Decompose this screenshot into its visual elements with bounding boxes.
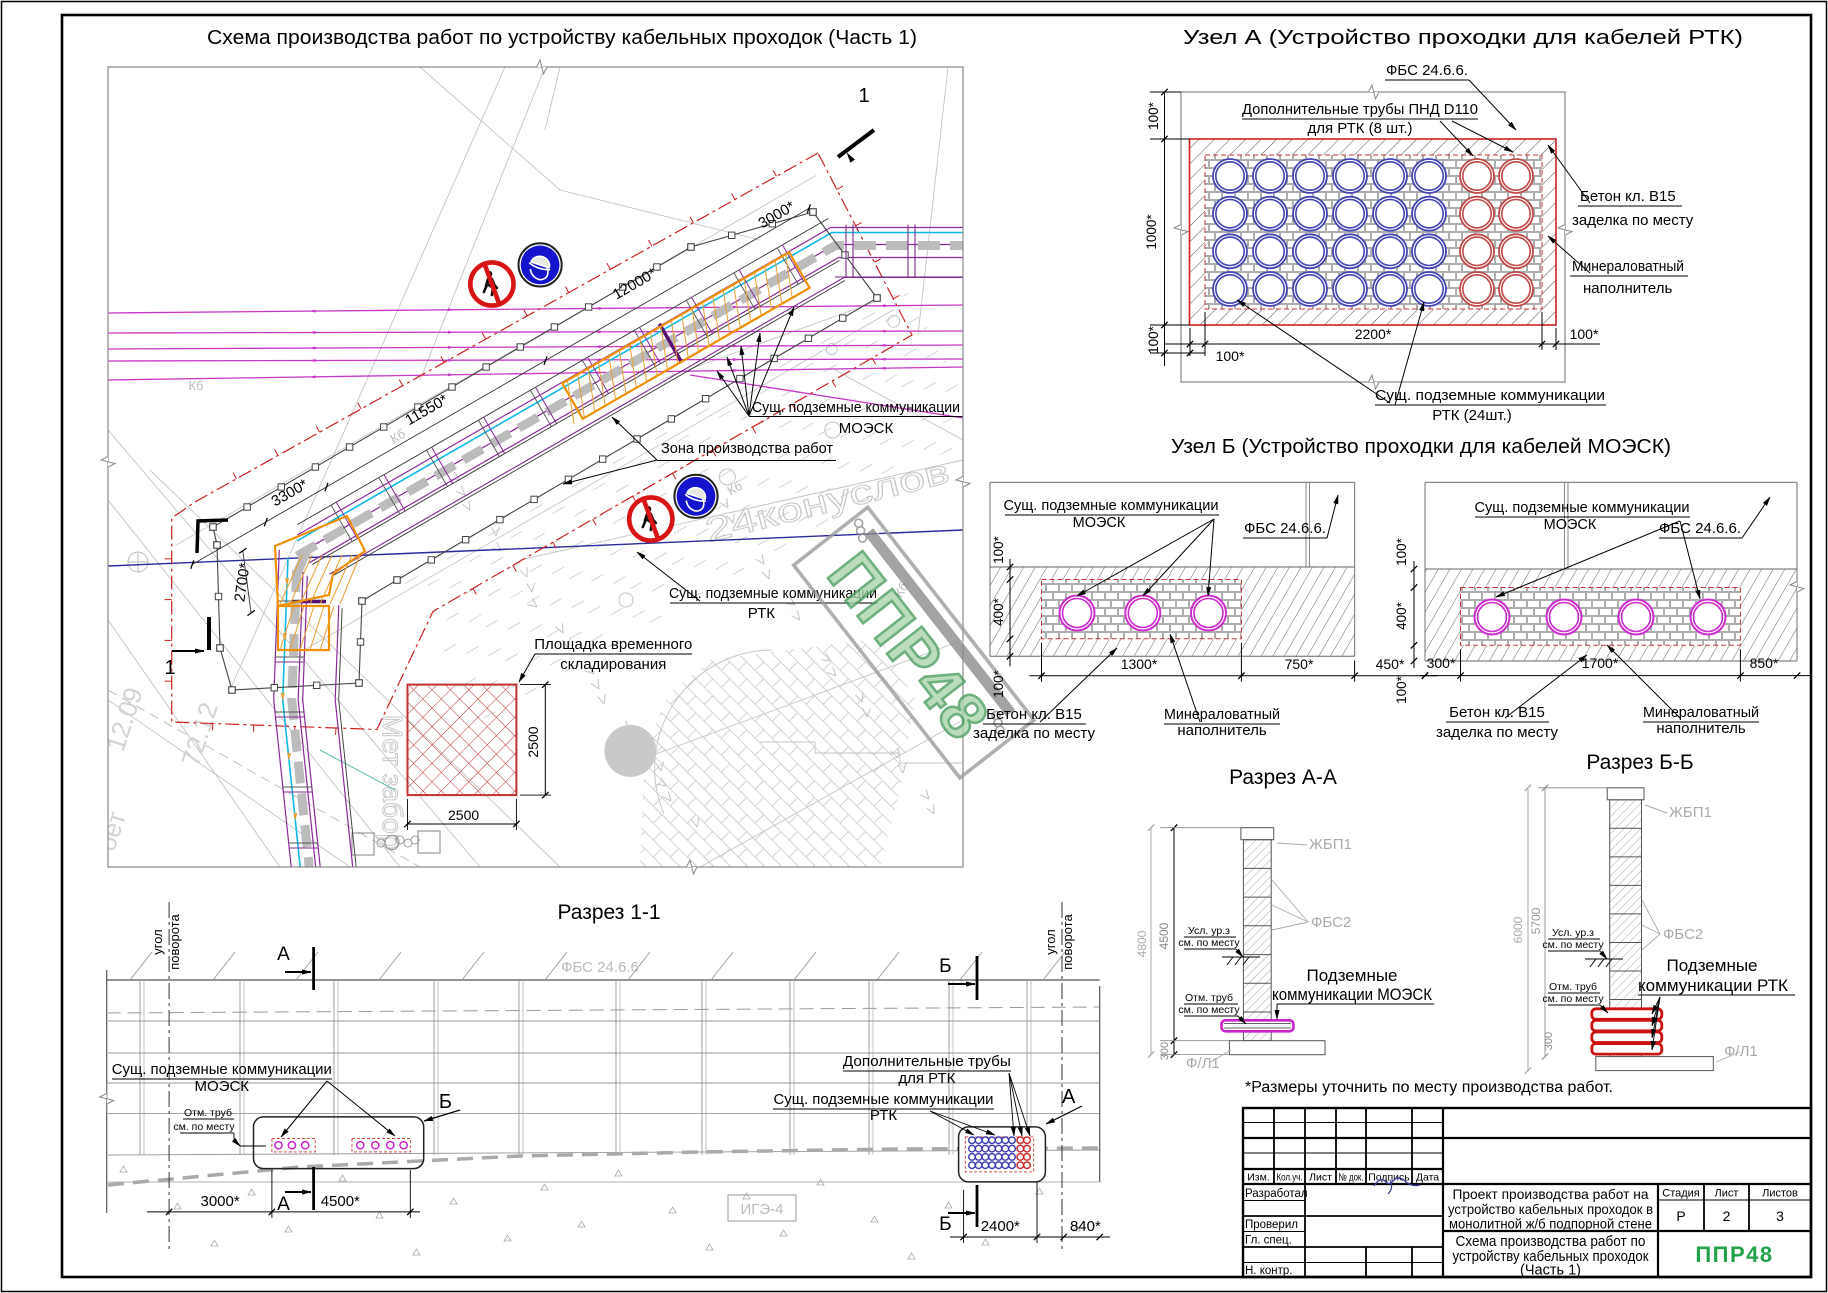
svg-text:Минераловатный: Минераловатный bbox=[1164, 706, 1280, 723]
svg-text:100*: 100* bbox=[1394, 537, 1409, 566]
svg-text:Дополнительные трубы: Дополнительные трубы bbox=[843, 1053, 1011, 1070]
svg-text:Листов: Листов bbox=[1762, 1188, 1798, 1200]
svg-text:Н. контр.: Н. контр. bbox=[1245, 1265, 1292, 1277]
svg-text:Стадия: Стадия bbox=[1662, 1188, 1700, 1200]
svg-text:5700: 5700 bbox=[1529, 907, 1543, 934]
svg-text:*Размеры уточнить по месту про: *Размеры уточнить по месту производства … bbox=[1245, 1079, 1613, 1096]
svg-text:Отм. труб: Отм. труб bbox=[1549, 981, 1597, 993]
svg-text:угол: угол bbox=[1043, 929, 1058, 955]
svg-text:МОЭСК: МОЭСК bbox=[1073, 515, 1126, 531]
svg-text:100*: 100* bbox=[1146, 325, 1161, 354]
svg-text:450*: 450* bbox=[1376, 656, 1405, 672]
svg-text:Разрез А-А: Разрез А-А bbox=[1229, 766, 1337, 789]
svg-text:Схема производства работ по: Схема производства работ по bbox=[1456, 1234, 1646, 1250]
svg-text:Сущ. подземные коммуникации: Сущ. подземные коммуникации bbox=[1375, 387, 1605, 404]
svg-text:Минераловатный: Минераловатный bbox=[1643, 704, 1759, 721]
svg-text:Усл. ур.з: Усл. ур.з bbox=[1552, 927, 1594, 939]
svg-text:Б: Б bbox=[939, 956, 951, 977]
svg-text:850*: 850* bbox=[1750, 655, 1779, 671]
svg-text:Б: Б bbox=[939, 1214, 951, 1235]
svg-text:Мет забор: Мет забор bbox=[377, 715, 408, 849]
svg-text:Проект производства работ на: Проект производства работ на bbox=[1453, 1186, 1649, 1202]
svg-text:Сущ. подземные коммуникации: Сущ. подземные коммуникации bbox=[112, 1061, 332, 1078]
svg-text:Подземные: Подземные bbox=[1306, 966, 1397, 985]
svg-text:Бетон кл. B15: Бетон кл. B15 bbox=[1449, 704, 1545, 721]
svg-text:Изм.: Изм. bbox=[1247, 1172, 1270, 1184]
svg-text:Подпись: Подпись bbox=[1368, 1172, 1410, 1184]
svg-text:Б: Б bbox=[439, 1091, 452, 1113]
svg-text:2400*: 2400* bbox=[981, 1218, 1020, 1235]
svg-text:2: 2 bbox=[1723, 1208, 1731, 1224]
svg-text:см. по месту: см. по месту bbox=[1542, 939, 1604, 951]
svg-text:1300*: 1300* bbox=[1121, 656, 1158, 672]
svg-text:РТК (24шт.): РТК (24шт.) bbox=[1432, 407, 1511, 424]
svg-text:Сущ. подземные коммуникации: Сущ. подземные коммуникации bbox=[1004, 498, 1219, 514]
svg-text:Узел Б (Устройство проходки дл: Узел Б (Устройство проходки для кабелей … bbox=[1171, 436, 1671, 458]
svg-text:Р: Р bbox=[1676, 1208, 1685, 1224]
svg-text:Разрез Б-Б: Разрез Б-Б bbox=[1586, 751, 1693, 774]
svg-text:наполнитель: наполнитель bbox=[1656, 720, 1745, 737]
svg-text:складирования: складирования bbox=[560, 656, 666, 673]
svg-text:Сущ. подземные коммуникации: Сущ. подземные коммуникации bbox=[774, 1091, 994, 1108]
svg-text:для РТК (8 шт.): для РТК (8 шт.) bbox=[1307, 120, 1412, 137]
svg-text:РТК: РТК bbox=[870, 1107, 897, 1124]
svg-text:МОЭСК: МОЭСК bbox=[195, 1078, 250, 1095]
svg-text:1700*: 1700* bbox=[1582, 655, 1619, 671]
svg-text:3: 3 bbox=[1776, 1208, 1784, 1224]
svg-text:1: 1 bbox=[858, 85, 869, 107]
svg-text:монолитной ж/б подпорной стене: монолитной ж/б подпорной стене bbox=[1449, 1216, 1652, 1232]
svg-text:РТК: РТК bbox=[748, 605, 775, 622]
svg-text:ФБС 24.6.6.: ФБС 24.6.6. bbox=[1659, 520, 1741, 537]
svg-text:Ф/Л1: Ф/Л1 bbox=[1186, 1055, 1220, 1072]
svg-text:Подземные: Подземные bbox=[1666, 956, 1757, 975]
svg-text:4800: 4800 bbox=[1135, 930, 1149, 957]
svg-text:см. по месту: см. по месту bbox=[1178, 937, 1240, 949]
svg-text:Проверил: Проверил bbox=[1245, 1219, 1298, 1231]
svg-text:840*: 840* bbox=[1070, 1218, 1101, 1235]
svg-text:№ док.: № док. bbox=[1339, 1172, 1364, 1184]
svg-text:Сущ. подземные коммуникации: Сущ. подземные коммуникации bbox=[752, 399, 960, 416]
svg-text:А: А bbox=[1062, 1086, 1076, 1108]
svg-text:1: 1 bbox=[164, 657, 175, 679]
svg-text:ИГЭ-4: ИГЭ-4 bbox=[740, 1201, 783, 1218]
svg-text:А: А bbox=[277, 944, 290, 965]
svg-text:300: 300 bbox=[1543, 1032, 1555, 1050]
svg-text:Бетон кл. B15: Бетон кл. B15 bbox=[986, 706, 1082, 723]
svg-text:Усл. ур.з: Усл. ур.з bbox=[1188, 925, 1230, 937]
svg-text:400*: 400* bbox=[1394, 601, 1409, 630]
svg-text:100*: 100* bbox=[1570, 326, 1599, 342]
svg-text:ФБС2: ФБС2 bbox=[1663, 926, 1703, 943]
svg-text:заделка по месту: заделка по месту bbox=[1572, 212, 1694, 229]
svg-text:3000*: 3000* bbox=[200, 1193, 239, 1210]
svg-text:1000*: 1000* bbox=[1144, 214, 1159, 250]
svg-text:Отм. труб: Отм. труб bbox=[1185, 992, 1233, 1004]
svg-text:300: 300 bbox=[1159, 1042, 1171, 1060]
svg-text:Лист: Лист bbox=[1309, 1172, 1332, 1184]
svg-text:ФБС 24.6.6: ФБС 24.6.6 bbox=[561, 959, 639, 976]
svg-text:наполнитель: наполнитель bbox=[1177, 722, 1266, 739]
svg-text:поворота: поворота bbox=[167, 914, 182, 970]
svg-text:наполнитель: наполнитель bbox=[1583, 280, 1672, 297]
svg-text:Бетон кл. B15: Бетон кл. B15 bbox=[1580, 188, 1676, 205]
svg-text:см. по месту: см. по месту bbox=[1178, 1004, 1240, 1016]
svg-text:ФБС 24.6.6.: ФБС 24.6.6. bbox=[1386, 62, 1468, 79]
svg-text:МОЭСК: МОЭСК bbox=[1544, 517, 1597, 533]
svg-text:Отм. труб: Отм. труб bbox=[184, 1107, 232, 1119]
svg-text:Узел А (Устройство проходки дл: Узел А (Устройство проходки для кабелей … bbox=[1183, 27, 1743, 49]
svg-text:100*: 100* bbox=[991, 535, 1006, 564]
svg-text:МОЭСК: МОЭСК bbox=[839, 420, 894, 437]
svg-text:400*: 400* bbox=[991, 597, 1006, 626]
svg-text:Площадка временного: Площадка временного bbox=[534, 636, 692, 653]
svg-text:ППР48: ППР48 bbox=[1695, 1242, 1773, 1267]
svg-text:заделка по месту: заделка по месту bbox=[973, 725, 1096, 742]
svg-text:4500*: 4500* bbox=[321, 1193, 360, 1210]
svg-text:ЖБП1: ЖБП1 bbox=[1309, 836, 1352, 853]
svg-text:ФБС2: ФБС2 bbox=[1311, 914, 1351, 931]
svg-text:для РТК: для РТК bbox=[898, 1070, 955, 1087]
svg-text:Дополнительные трубы ПНД D110: Дополнительные трубы ПНД D110 bbox=[1242, 101, 1478, 118]
svg-text:Разрез 1-1: Разрез 1-1 bbox=[557, 901, 660, 924]
svg-text:коммуникации РТК: коммуникации РТК bbox=[1638, 976, 1788, 995]
svg-text:Дата: Дата bbox=[1416, 1172, 1439, 1184]
svg-text:Разработал: Разработал bbox=[1245, 1188, 1308, 1200]
svg-text:6000: 6000 bbox=[1511, 916, 1525, 943]
svg-text:100*: 100* bbox=[1394, 675, 1409, 704]
svg-text:100*: 100* bbox=[991, 669, 1006, 698]
svg-text:2200*: 2200* bbox=[1355, 326, 1392, 342]
svg-text:Зона производства работ: Зона производства работ bbox=[661, 440, 833, 457]
svg-text:см. по месту: см. по месту bbox=[1542, 993, 1604, 1005]
svg-text:300*: 300* bbox=[1427, 655, 1456, 671]
svg-text:Сущ. подземные коммуникации: Сущ. подземные коммуникации bbox=[1475, 500, 1690, 516]
svg-text:750*: 750* bbox=[1285, 656, 1314, 672]
svg-text:поворота: поворота bbox=[1060, 914, 1075, 970]
svg-text:2500: 2500 bbox=[448, 807, 479, 823]
svg-text:Кол.уч.: Кол.уч. bbox=[1277, 1172, 1303, 1184]
svg-text:4500: 4500 bbox=[1157, 922, 1171, 949]
svg-text:Кб: Кб bbox=[188, 378, 203, 393]
svg-text:коммуникации МОЭСК: коммуникации МОЭСК bbox=[1272, 985, 1432, 1004]
svg-text:угол: угол bbox=[150, 929, 165, 955]
svg-text:Лист: Лист bbox=[1715, 1188, 1739, 1200]
svg-text:Гл. спец.: Гл. спец. bbox=[1245, 1235, 1292, 1247]
svg-text:(Часть 1): (Часть 1) bbox=[1520, 1263, 1581, 1279]
svg-text:2500: 2500 bbox=[525, 726, 541, 757]
svg-text:ЖБП1: ЖБП1 bbox=[1669, 804, 1712, 821]
svg-text:100*: 100* bbox=[1216, 348, 1245, 364]
svg-text:заделка по месту: заделка по месту bbox=[1436, 724, 1559, 741]
svg-text:Схема производства работ по ус: Схема производства работ по устройству к… bbox=[207, 27, 917, 49]
svg-text:ФБС 24.6.6.: ФБС 24.6.6. bbox=[1244, 520, 1326, 537]
svg-text:см. по месту: см. по месту bbox=[173, 1121, 235, 1133]
svg-text:Ф/Л1: Ф/Л1 bbox=[1724, 1043, 1758, 1060]
svg-text:100*: 100* bbox=[1146, 101, 1161, 130]
